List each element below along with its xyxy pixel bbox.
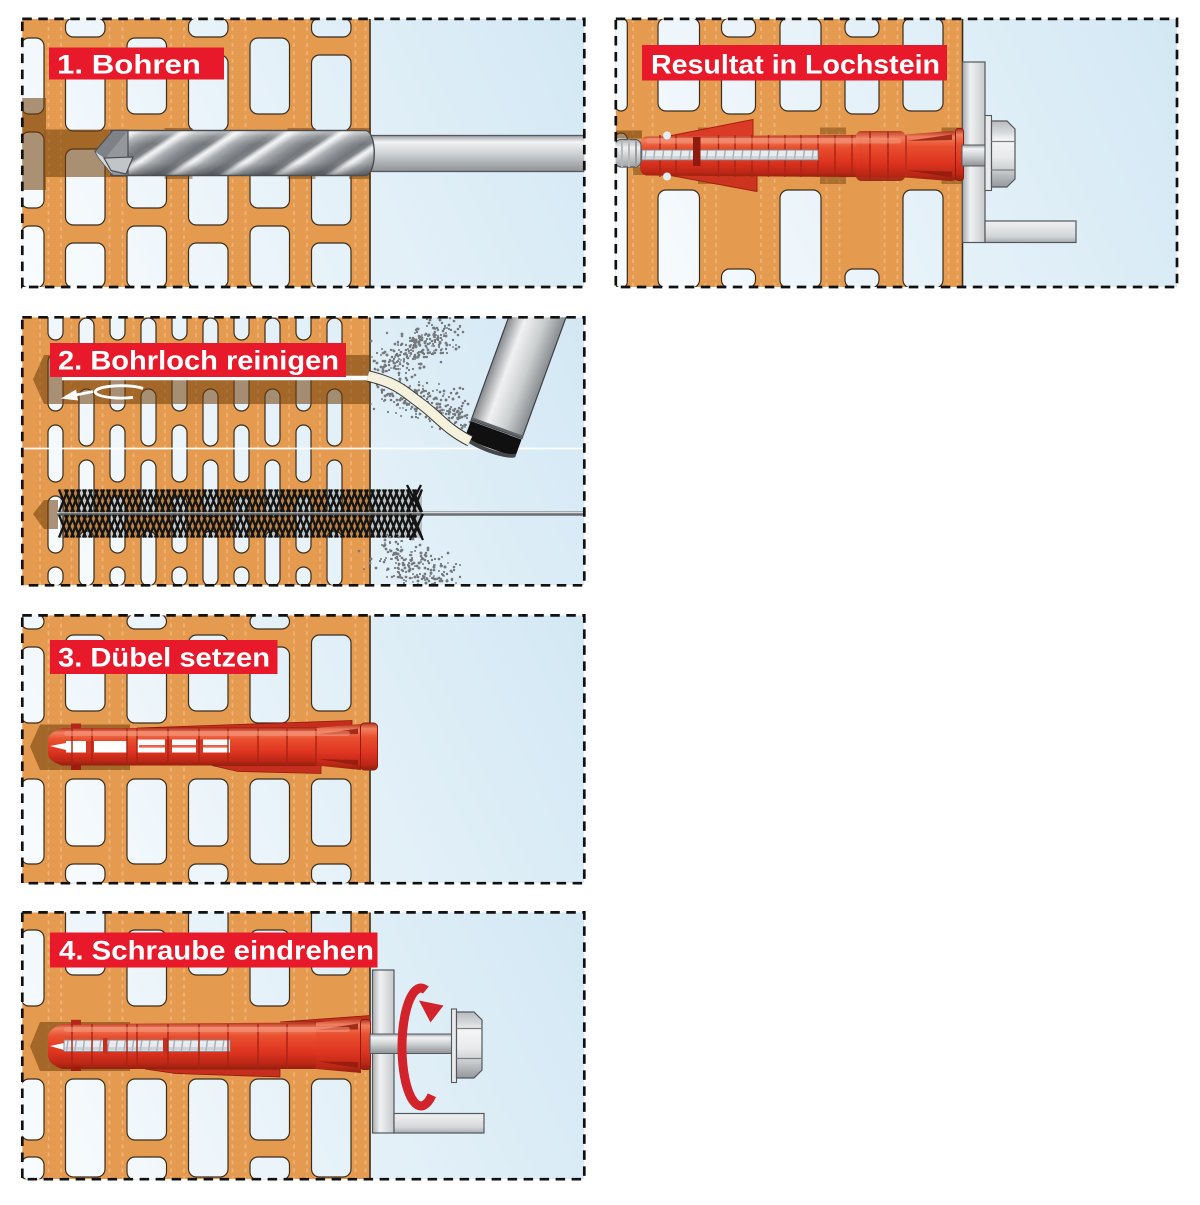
svg-text:Resultat in Lochstein: Resultat in Lochstein [651, 50, 940, 80]
svg-text:4. Schraube eindrehen: 4. Schraube eindrehen [59, 936, 374, 966]
svg-text:3. Dübel setzen: 3. Dübel setzen [58, 643, 270, 673]
svg-text:2. Bohrloch reinigen: 2. Bohrloch reinigen [58, 346, 339, 376]
svg-text:1. Bohren: 1. Bohren [57, 50, 201, 80]
